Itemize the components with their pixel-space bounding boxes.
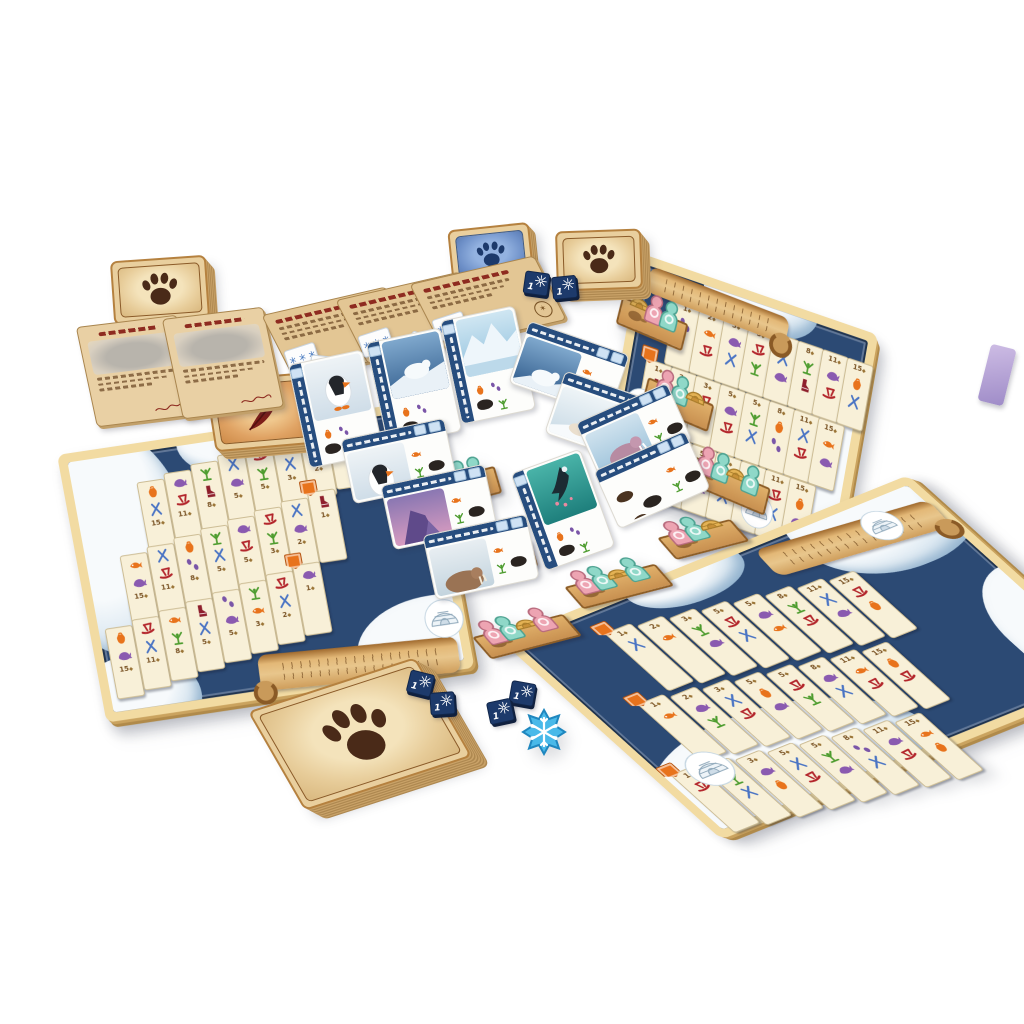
track-value: 5◆: [810, 741, 825, 750]
whale-icon: [227, 474, 245, 491]
track-value: 5◆: [745, 678, 760, 687]
whale-icon: [766, 698, 792, 715]
track-value: 15◆: [151, 519, 166, 529]
whale-icon: [130, 574, 148, 591]
token-value: 1: [556, 287, 563, 298]
card-art-walrus: [428, 538, 495, 597]
fish-icon: [490, 540, 504, 554]
skis-icon: [795, 426, 812, 446]
sled-icon: [792, 444, 809, 464]
fish-icon: [912, 726, 938, 743]
track-value: 3◆: [746, 756, 761, 765]
track-value: 11◆: [770, 475, 784, 487]
track-value: 15◆: [823, 423, 837, 435]
whale-icon: [115, 647, 133, 664]
track-value: 2◆: [297, 538, 307, 547]
movement-token: 1: [551, 275, 578, 300]
catch-icon: [798, 691, 824, 708]
bag-icon: [848, 374, 865, 394]
steps-icon: [566, 521, 581, 536]
track-value: 5◆: [243, 556, 253, 565]
whale-icon: [222, 611, 240, 628]
paw-icon: [580, 243, 617, 277]
whale-icon: [725, 332, 742, 352]
skis-icon: [720, 692, 746, 709]
skis-icon: [142, 638, 160, 655]
fish-icon: [820, 434, 837, 454]
movement-token: 1: [429, 691, 456, 716]
paw-icon: [139, 270, 182, 310]
track-value: 8◆: [175, 647, 185, 656]
skis-icon: [276, 593, 294, 610]
meeple-ledge: [472, 614, 582, 660]
track-value: 3◆: [255, 620, 265, 629]
sled-icon: [797, 612, 823, 629]
whale-icon: [831, 762, 857, 779]
track-value: 8◆: [776, 407, 786, 418]
skis-icon: [623, 637, 649, 654]
sled-icon: [799, 769, 825, 786]
catch-icon: [197, 465, 215, 482]
catch-icon: [496, 394, 510, 408]
skis-icon: [830, 683, 856, 700]
track-value: 3◆: [270, 547, 280, 556]
catch-icon: [452, 508, 466, 522]
animal-silhouette: [558, 543, 576, 558]
steps-icon: [219, 593, 237, 610]
track-value: 8◆: [842, 734, 857, 743]
whale-icon: [688, 700, 714, 717]
animal-silhouette: [684, 468, 703, 484]
track-value: 11◆: [146, 656, 161, 666]
catch-icon: [412, 462, 426, 476]
sled-icon: [895, 747, 921, 764]
skis-icon: [733, 627, 759, 644]
track-value: 3◆: [680, 615, 695, 624]
sled-icon: [272, 575, 290, 592]
track-value: 5◆: [752, 399, 762, 410]
skis-icon: [845, 392, 862, 412]
catch-icon: [246, 584, 264, 601]
sled-icon: [750, 340, 767, 360]
sled-icon: [260, 511, 278, 528]
bag-icon: [879, 655, 905, 672]
track-value: 5◆: [777, 670, 792, 679]
bag-icon: [180, 539, 198, 556]
skis-icon: [147, 501, 165, 518]
track-value: 5◆: [727, 390, 737, 401]
token-value: 1: [434, 703, 441, 713]
whale-icon: [291, 520, 309, 537]
fish-icon: [165, 612, 183, 629]
movement-token: 1: [523, 270, 551, 296]
skis-icon: [735, 784, 761, 801]
sled-icon: [862, 676, 888, 693]
sled-icon: [820, 384, 837, 404]
whale-icon: [815, 670, 841, 687]
boot-icon: [200, 483, 218, 500]
track-value: 5◆: [228, 629, 238, 638]
fish-icon: [847, 662, 873, 679]
track-value: 11◆: [827, 355, 841, 367]
sled-icon: [718, 418, 735, 438]
skis-icon: [210, 547, 228, 564]
track-value: 11◆: [177, 510, 192, 520]
track-value: 5◆: [260, 483, 270, 492]
whale-icon: [701, 635, 727, 652]
snowflake-token-shape: [520, 708, 568, 756]
steps-icon: [488, 377, 502, 391]
track-value: 11◆: [799, 415, 813, 427]
boot-icon: [192, 602, 210, 619]
card-sliver-right-edge: [977, 344, 1016, 407]
track-value: 1◆: [649, 700, 664, 709]
bag-icon: [472, 380, 486, 394]
sled-icon: [697, 341, 714, 361]
skis-icon: [814, 591, 840, 608]
bag-icon: [551, 526, 566, 541]
track-value: 8◆: [809, 663, 824, 672]
skis-icon: [722, 350, 739, 370]
track-value: 5◆: [217, 565, 227, 574]
bag-icon: [927, 739, 953, 756]
skis-icon: [784, 756, 810, 773]
track-value: 3◆: [713, 685, 728, 694]
catch-icon: [264, 529, 282, 546]
snowflake-token: [520, 708, 568, 754]
track-value: 2◆: [681, 693, 696, 702]
sled-icon: [734, 706, 760, 723]
token-value: 1: [410, 681, 418, 692]
catch-icon: [494, 558, 508, 572]
whale-icon: [170, 474, 188, 491]
track-value: 15◆: [852, 363, 866, 375]
fish-icon: [643, 411, 659, 427]
bag-icon: [791, 494, 808, 514]
sled-icon: [237, 538, 255, 555]
skis-icon: [287, 502, 305, 519]
track-value: 2◆: [648, 622, 663, 631]
catch-icon: [168, 629, 186, 646]
board-game-table-scene: 15◆11◆8◆5◆5◆3◆2◆1◆15◆11◆8◆5◆5◆3◆2◆1◆15◆1…: [0, 0, 1024, 1024]
sled-icon: [719, 614, 745, 631]
fish-icon: [249, 602, 267, 619]
steps-icon: [767, 435, 784, 455]
skis-icon: [743, 427, 760, 447]
movement-token: 1: [486, 698, 515, 726]
fish-icon: [656, 707, 682, 724]
fish-icon: [655, 629, 681, 646]
card-art-polar-bear: [381, 331, 450, 400]
whale-icon: [721, 400, 738, 420]
track-value: 15◆: [119, 665, 134, 675]
fish-icon: [701, 323, 718, 343]
catch-icon: [747, 358, 764, 378]
fish-icon: [448, 490, 462, 504]
track-value: 8◆: [776, 592, 791, 601]
track-value: 1◆: [616, 630, 631, 639]
catch-icon: [746, 409, 763, 429]
track-value: 5◆: [233, 492, 243, 501]
catch-icon: [816, 748, 842, 765]
animal-silhouette: [324, 442, 342, 455]
whale-icon: [753, 763, 779, 780]
track-value: 1◆: [305, 584, 315, 593]
track-value: 15◆: [134, 592, 149, 602]
bag-icon: [320, 424, 334, 438]
fish-icon: [127, 557, 145, 574]
bag-icon: [398, 402, 412, 416]
sled-icon: [174, 492, 192, 509]
token-value: 1: [527, 282, 535, 293]
catch-icon: [799, 357, 816, 377]
fish-icon: [408, 444, 422, 458]
catch-icon: [669, 475, 685, 491]
track-value: 5◆: [744, 600, 759, 609]
fish-icon: [661, 459, 677, 475]
card-art-puffin: [303, 353, 372, 422]
meeple-ledge: [657, 519, 750, 560]
fish-icon: [765, 620, 791, 637]
bag-icon: [112, 630, 130, 647]
whale-icon: [816, 452, 833, 472]
steps-icon: [336, 421, 350, 435]
whale-icon: [750, 607, 776, 624]
boot-icon: [314, 493, 332, 510]
whale-icon: [829, 605, 855, 622]
steps-icon: [414, 399, 428, 413]
signature-flourish: [238, 392, 274, 406]
meeple-ledge: [564, 564, 674, 610]
bag-icon: [143, 483, 161, 500]
bag-icon: [751, 685, 777, 702]
track-value: 15◆: [795, 483, 809, 495]
whale-icon: [234, 520, 252, 537]
track-value: 5◆: [202, 638, 212, 647]
steps-icon: [848, 741, 874, 758]
sled-icon: [846, 584, 872, 601]
skis-icon: [195, 620, 213, 637]
catch-icon: [782, 599, 808, 616]
token-value: 1: [512, 692, 520, 703]
skis-icon: [281, 456, 299, 473]
track-value: 8◆: [190, 574, 200, 583]
track-value: 5◆: [712, 607, 727, 616]
boot-icon: [796, 375, 813, 395]
whale-icon: [824, 366, 841, 386]
objective-stamp: ✶: [531, 300, 556, 319]
track-value: 1◆: [320, 511, 330, 520]
animal-silhouette: [476, 398, 494, 411]
track-value: 3◆: [287, 474, 297, 483]
sled-icon: [157, 565, 175, 582]
bag-icon: [770, 417, 787, 437]
track-value: 2◆: [282, 611, 292, 620]
animal-silhouette: [468, 505, 486, 518]
whale-icon: [299, 566, 317, 583]
bag-icon: [861, 597, 887, 614]
catch-icon: [576, 536, 591, 551]
sled-icon: [783, 677, 809, 694]
catch-icon: [702, 713, 728, 730]
skis-icon: [863, 754, 889, 771]
fish-icon: [580, 362, 595, 377]
sled-icon: [894, 668, 920, 685]
catch-icon: [254, 465, 272, 482]
sled-icon: [251, 447, 269, 464]
whale-icon: [880, 733, 906, 750]
sled-icon: [138, 621, 156, 638]
movement-token: 1: [508, 680, 537, 707]
track-value: 11◆: [161, 583, 176, 593]
skis-icon: [153, 548, 171, 565]
animal-silhouette: [510, 555, 528, 568]
whale-icon: [771, 367, 788, 387]
track-value: 8◆: [207, 501, 217, 510]
igloo-icon: [421, 596, 468, 641]
steps-icon: [183, 556, 201, 573]
skis-icon: [224, 456, 242, 473]
bag-icon: [767, 777, 793, 794]
track-value: 5◆: [778, 749, 793, 758]
animal-silhouette: [428, 459, 446, 472]
catch-icon: [207, 529, 225, 546]
track-value: 8◆: [805, 347, 815, 358]
catch-icon: [687, 622, 713, 639]
